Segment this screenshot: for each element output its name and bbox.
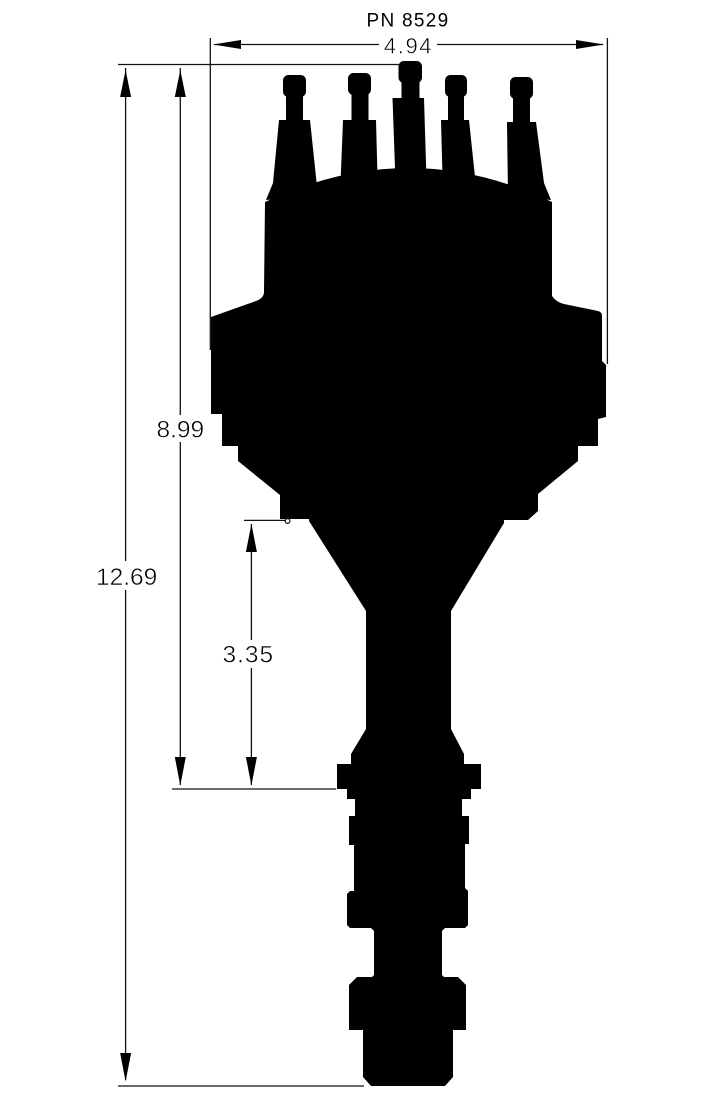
svg-text:8.99: 8.99 [156,417,204,444]
svg-text:12.69: 12.69 [96,564,157,591]
svg-text:3.35: 3.35 [222,642,274,669]
svg-text:PN 8529: PN 8529 [366,11,449,32]
svg-text:4.94: 4.94 [384,34,433,59]
